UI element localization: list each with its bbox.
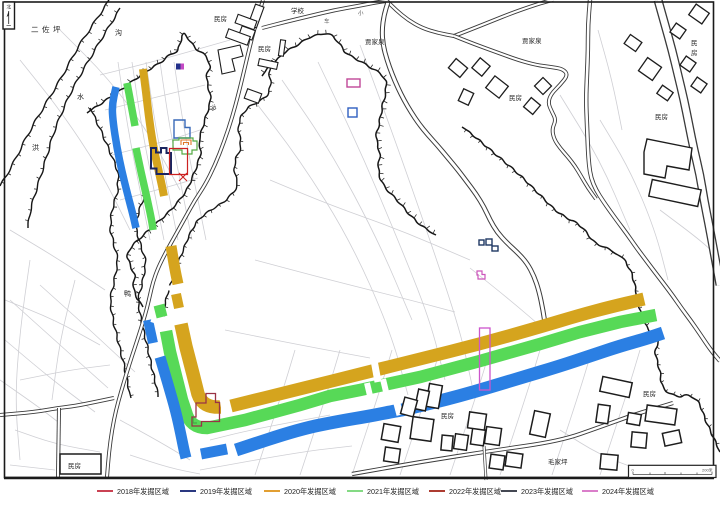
svg-text:民房: 民房 [509,93,522,102]
svg-text:房: 房 [691,48,698,57]
svg-text:二佐坪: 二佐坪 [31,24,64,34]
svg-text:2024年发掘区域: 2024年发掘区域 [602,487,654,496]
svg-text:毛家坪: 毛家坪 [548,457,568,466]
svg-text:民房: 民房 [655,112,668,121]
svg-text:民房: 民房 [68,461,81,470]
svg-text:民房: 民房 [643,389,656,398]
svg-text:北: 北 [6,4,11,11]
svg-text:贾家泉: 贾家泉 [522,36,542,45]
svg-text:民: 民 [691,39,698,47]
svg-text:民房: 民房 [214,14,227,23]
svg-text:2023年发掘区域: 2023年发掘区域 [521,487,573,496]
svg-text:2018年发掘区域: 2018年发掘区域 [117,487,169,496]
svg-text:鸭: 鸭 [124,289,131,298]
svg-text:200米: 200米 [702,467,713,473]
svg-text:2019年发掘区域: 2019年发掘区域 [200,487,252,496]
svg-text:2020年发掘区域: 2020年发掘区域 [284,487,336,496]
svg-text:学校: 学校 [291,6,305,15]
svg-text:沟: 沟 [115,28,122,37]
svg-text:民房: 民房 [441,411,454,420]
svg-text:车: 车 [324,17,330,25]
svg-text:2022年发掘区域: 2022年发掘区域 [449,487,501,496]
svg-text:2021年发掘区域: 2021年发掘区域 [367,487,419,496]
svg-text:洪: 洪 [32,143,39,152]
svg-text:贾家泉: 贾家泉 [365,37,385,46]
svg-text:小: 小 [358,9,364,17]
svg-text:民房: 民房 [258,44,271,53]
svg-text:水: 水 [77,92,84,101]
